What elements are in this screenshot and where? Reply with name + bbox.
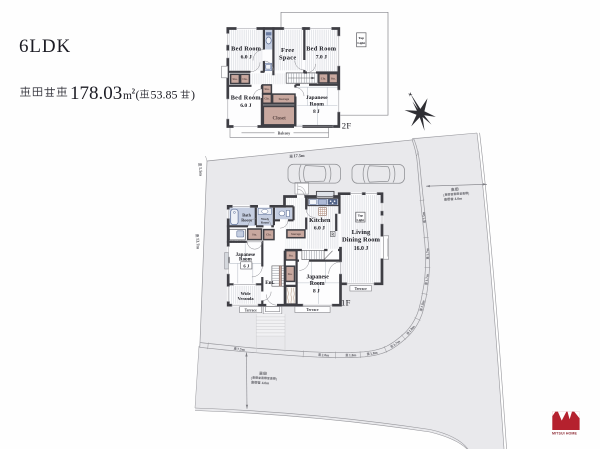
svg-text:7.5m: 7.5m	[237, 347, 245, 352]
svg-text:Terrace: Terrace	[306, 308, 319, 312]
svg-text:2.0m: 2.0m	[322, 353, 330, 357]
svg-text:Top: Top	[359, 36, 365, 40]
svg-text:Sto.: Sto.	[288, 273, 293, 276]
svg-text:Bed Room: Bed Room	[231, 94, 262, 101]
svg-text:Room: Room	[241, 217, 252, 222]
svg-text:1.8m: 1.8m	[349, 353, 357, 357]
svg-text:Ent.: Ent.	[265, 280, 275, 286]
svg-text:Space: Space	[279, 55, 296, 62]
svg-text:Light: Light	[357, 218, 366, 222]
svg-text:4.0m: 4.0m	[454, 197, 462, 202]
svg-text:Sto.: Sto.	[265, 87, 270, 91]
svg-text:Sto.: Sto.	[252, 232, 257, 236]
svg-text:Kitchen: Kitchen	[309, 218, 331, 224]
svg-text:(: (	[136, 88, 140, 102]
svg-text:Sto.: Sto.	[289, 254, 294, 257]
svg-text:Closet: Closet	[273, 116, 287, 121]
svg-text:8 J: 8 J	[313, 289, 320, 295]
svg-text:Japanese: Japanese	[306, 95, 328, 101]
svg-text:Bed Room: Bed Room	[306, 46, 337, 53]
svg-text:53.85: 53.85	[151, 88, 178, 102]
svg-text:Clo.: Clo.	[264, 97, 270, 101]
svg-text:1.7m: 1.7m	[425, 274, 430, 282]
svg-text:Clo.: Clo.	[321, 76, 327, 80]
svg-text:Free: Free	[281, 47, 295, 54]
svg-text:Light: Light	[357, 41, 366, 45]
svg-text:8 J: 8 J	[313, 109, 320, 115]
svg-text:Living: Living	[352, 229, 371, 236]
svg-text:13.7m: 13.7m	[195, 238, 200, 250]
svg-text:Sto.: Sto.	[331, 76, 336, 80]
svg-text:Dining Room: Dining Room	[342, 237, 381, 244]
svg-text:6 J: 6 J	[243, 263, 249, 268]
svg-text:16.0 J: 16.0 J	[354, 246, 369, 252]
svg-text:Terrace: Terrace	[245, 308, 258, 312]
svg-text:Storage: Storage	[279, 97, 290, 101]
svg-text:6.0 J: 6.0 J	[241, 54, 252, 60]
svg-text:17.5m: 17.5m	[293, 153, 305, 158]
svg-text:Sto.: Sto.	[233, 77, 238, 81]
svg-text:Clo.: Clo.	[266, 233, 272, 237]
svg-text:1F: 1F	[341, 298, 351, 308]
svg-text:1.5m: 1.5m	[198, 167, 203, 177]
svg-text:Clo.: Clo.	[242, 77, 248, 81]
svg-text:1.7m: 1.7m	[425, 248, 429, 256]
svg-text:Storage: Storage	[291, 232, 301, 236]
svg-text:6.0 J: 6.0 J	[240, 103, 251, 109]
svg-text:178.03: 178.03	[70, 83, 122, 104]
svg-text:Room: Room	[310, 102, 325, 108]
svg-text:Balcony: Balcony	[278, 131, 291, 135]
svg-text:R: R	[331, 232, 334, 236]
svg-text:): )	[276, 377, 277, 381]
svg-text:MITSUI HOME: MITSUI HOME	[552, 431, 577, 435]
svg-text:6.0 J: 6.0 J	[314, 225, 325, 231]
svg-text:Veranda: Veranda	[238, 296, 255, 301]
svg-text:Room: Room	[239, 258, 253, 263]
svg-text:Japanese: Japanese	[306, 274, 329, 280]
svg-text:Terrace: Terrace	[355, 287, 368, 291]
svg-text:7.0 J: 7.0 J	[316, 54, 327, 60]
svg-text:Room: Room	[261, 220, 269, 224]
svg-text:4.0m: 4.0m	[262, 381, 270, 385]
svg-text:Room: Room	[310, 281, 325, 287]
svg-text:Bed Room: Bed Room	[231, 46, 262, 53]
svg-text:2F: 2F	[342, 120, 352, 130]
svg-text:6LDK: 6LDK	[19, 36, 71, 57]
svg-text:): )	[191, 88, 195, 102]
